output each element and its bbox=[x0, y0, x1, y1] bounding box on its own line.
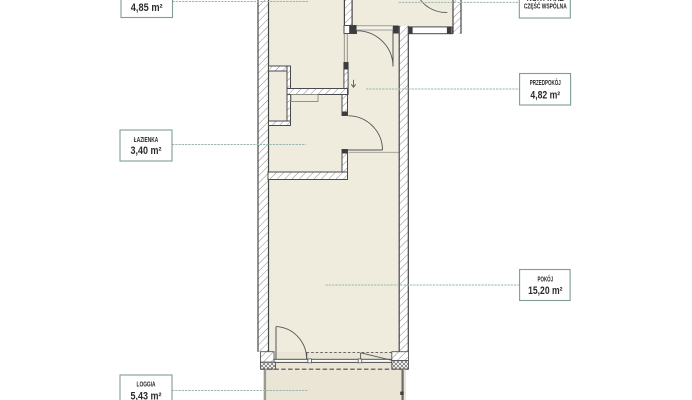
svg-text:5,43 m²: 5,43 m² bbox=[131, 390, 162, 400]
svg-text:4,82 m²: 4,82 m² bbox=[530, 90, 560, 102]
svg-text:15,20 m²: 15,20 m² bbox=[528, 285, 563, 297]
svg-text:3,40 m²: 3,40 m² bbox=[131, 145, 162, 157]
svg-text:POKÓJ: POKÓJ bbox=[538, 275, 554, 284]
svg-text:ŁAZIENKA: ŁAZIENKA bbox=[134, 135, 159, 144]
svg-text:4,85 m²: 4,85 m² bbox=[131, 2, 163, 14]
svg-text:LOGGIA: LOGGIA bbox=[137, 380, 156, 389]
svg-text:CZĘŚĆ WSPÓLNA: CZĘŚĆ WSPÓLNA bbox=[524, 2, 567, 11]
svg-text:PRZEDPOKÓJ: PRZEDPOKÓJ bbox=[530, 78, 561, 87]
